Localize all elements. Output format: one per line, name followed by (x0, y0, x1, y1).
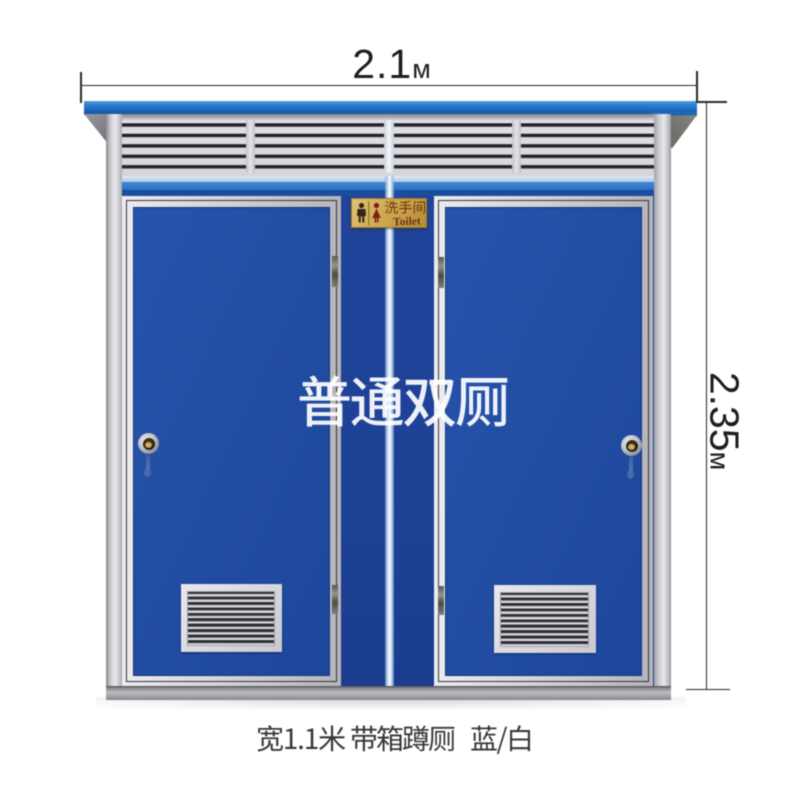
svg-text:Toilet: Toilet (393, 216, 421, 229)
